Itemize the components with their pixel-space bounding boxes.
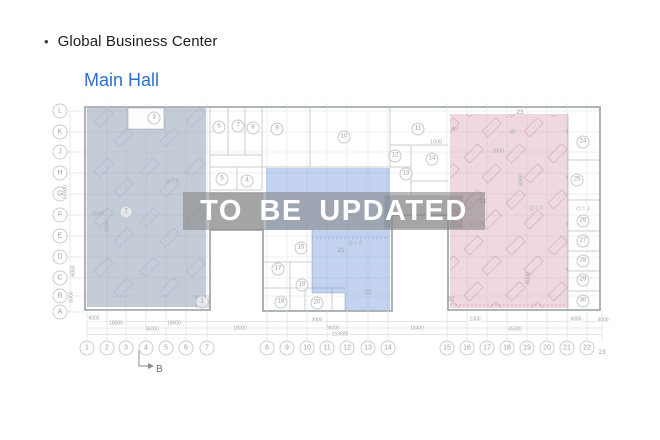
section-marker-label: B: [156, 364, 163, 375]
region-middle-fill: [266, 168, 390, 310]
hall-link[interactable]: Main Hall: [84, 70, 159, 91]
page-title-row: • Global Business Center: [44, 33, 217, 50]
watermark-band: TO BE UPDATED: [183, 192, 485, 230]
bullet-icon: •: [44, 35, 49, 48]
section-marker-arrow: [139, 350, 154, 369]
watermark-text: TO BE UPDATED: [200, 195, 468, 228]
page-title: Global Business Center: [58, 33, 218, 50]
page: LKJHGFEDCBA12345678910111213141516171819…: [0, 0, 660, 440]
